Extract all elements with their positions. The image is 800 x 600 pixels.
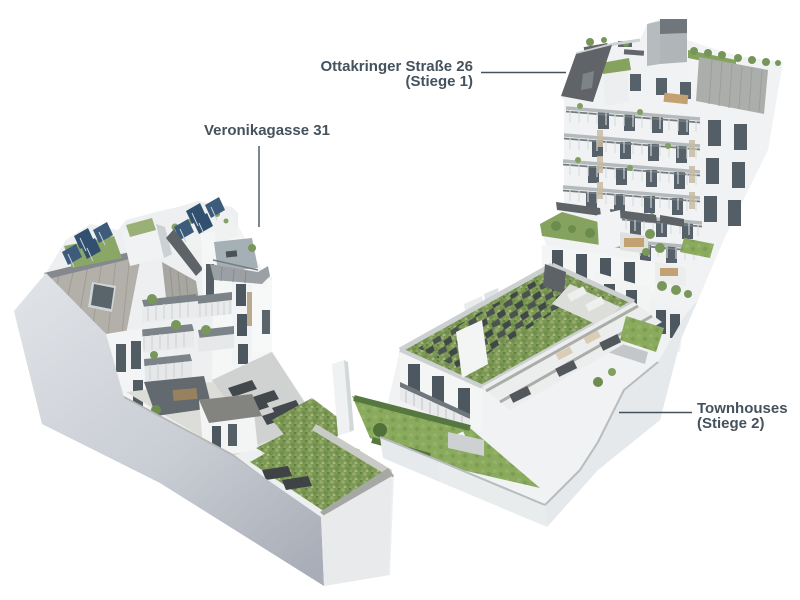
svg-text:(Stiege 1): (Stiege 1): [405, 73, 473, 90]
svg-text:Veronikagasse 31: Veronikagasse 31: [204, 122, 330, 139]
svg-text:(Stiege 2): (Stiege 2): [697, 415, 765, 432]
